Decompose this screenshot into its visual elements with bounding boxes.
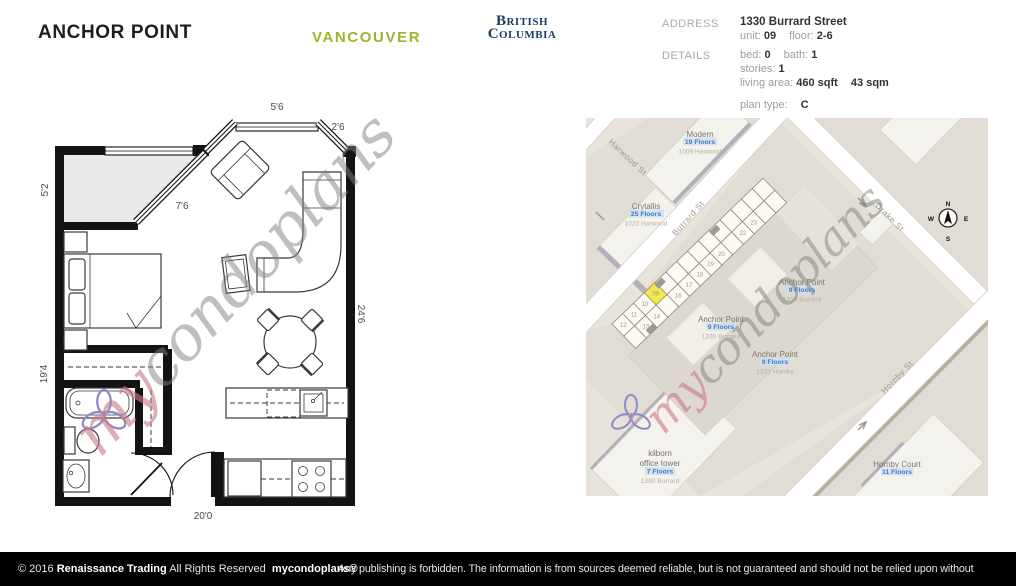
- rights-text: All Rights Reserved: [169, 563, 266, 575]
- svg-text:1333 Hornby: 1333 Hornby: [756, 369, 794, 376]
- dining-table: [257, 309, 324, 376]
- svg-text:1020 Harwood: 1020 Harwood: [625, 221, 668, 228]
- map-unit-number: 16: [675, 293, 682, 299]
- map-unit-number: 22: [740, 231, 747, 237]
- map-unit-number: 18: [697, 273, 704, 279]
- plan-type-value: C: [801, 99, 809, 111]
- floor-plan: 5'6 2'6 7'6 5'2 19'4 24'6 20'0: [40, 95, 370, 527]
- map-unit-number: 14: [653, 314, 660, 320]
- kitchen-counter: [224, 459, 346, 497]
- footer-bar: © 2016 Renaissance Trading All Rights Re…: [0, 552, 1016, 586]
- svg-text:7 Floors: 7 Floors: [647, 469, 674, 476]
- map-unit-number: 09: [652, 292, 659, 298]
- map-unit-number: 23: [750, 221, 757, 227]
- floor-value: 2-6: [817, 30, 833, 42]
- province-line2: Columbia: [462, 28, 582, 41]
- living-area-sqft: 460 sqft: [796, 77, 838, 89]
- plan-type-row: plan type: C: [740, 99, 809, 111]
- stories-row: stories: 1: [740, 63, 785, 75]
- condo-plan-sheet: ANCHOR POINT VANCOUVER British Columbia …: [0, 0, 1016, 586]
- bath-label: bath:: [784, 49, 808, 61]
- bed: [64, 232, 161, 350]
- floor-label: floor:: [789, 30, 813, 42]
- svg-text:N: N: [946, 201, 951, 208]
- svg-text:E: E: [964, 216, 969, 223]
- living-area-label: living area:: [740, 77, 793, 89]
- svg-text:office tower: office tower: [640, 459, 681, 468]
- svg-text:9 Floors: 9 Floors: [789, 287, 816, 294]
- bathroom-sink: [63, 460, 89, 492]
- kitchen-sink: [300, 390, 327, 416]
- svg-text:1330 Burrard: 1330 Burrard: [702, 334, 741, 341]
- svg-text:1330 Burrard: 1330 Burrard: [783, 297, 822, 304]
- svg-text:19 Floors: 19 Floors: [685, 139, 715, 146]
- bath-value: 1: [811, 49, 817, 61]
- unit-value: 09: [764, 30, 776, 42]
- copyright-year: © 2016: [18, 563, 54, 575]
- page-title: ANCHOR POINT: [38, 22, 192, 44]
- unit-floor-row: unit: 09 floor: 2-6: [740, 30, 833, 42]
- svg-text:kilborn: kilborn: [648, 449, 672, 458]
- bed-value: 0: [764, 49, 770, 61]
- dim-right: 24'6: [355, 305, 366, 324]
- toilet: [64, 427, 99, 454]
- entry-door: [170, 452, 216, 497]
- company-name: Renaissance Trading: [57, 563, 167, 575]
- dim-left-lower: 19'4: [40, 364, 50, 383]
- living-area-row: living area: 460 sqft 43 sqm: [740, 77, 889, 89]
- kitchen-island: [226, 388, 348, 418]
- city-label: VANCOUVER: [312, 29, 421, 46]
- svg-text:25 Floors: 25 Floors: [631, 211, 661, 218]
- dim-top: 5'6: [270, 102, 283, 113]
- stove: [292, 461, 331, 497]
- svg-text:9 Floors: 9 Floors: [708, 324, 735, 331]
- svg-text:W: W: [928, 216, 935, 223]
- location-map: 12111009131416171819202223 Harwood St Bu…: [586, 118, 988, 496]
- unit-label: unit:: [740, 30, 761, 42]
- nightstand: [64, 330, 87, 350]
- province-logo: British Columbia: [462, 15, 582, 41]
- svg-text:9 Floors: 9 Floors: [762, 359, 789, 366]
- map-unit-number: 20: [718, 252, 725, 258]
- dim-bottom: 20'0: [194, 511, 213, 522]
- footer-disclaimer: Any publishing is forbidden. The informa…: [338, 552, 1016, 586]
- plan-type-label: plan type:: [740, 99, 788, 111]
- bathtub: [66, 388, 133, 418]
- bay-window-diagonal-left: [206, 122, 235, 151]
- map-unit-number: 11: [631, 312, 638, 318]
- svg-text:1380 Burrard: 1380 Burrard: [641, 478, 680, 485]
- svg-text:1009 Harwood: 1009 Harwood: [679, 149, 722, 156]
- stories-label: stories:: [740, 63, 775, 75]
- details-label: DETAILS: [662, 50, 711, 62]
- ottoman: [222, 255, 250, 294]
- dim-diagonal: 7'6: [175, 201, 188, 212]
- map-unit-number: 10: [642, 302, 649, 308]
- map-unit-number: 17: [686, 283, 693, 289]
- address-value: 1330 Burrard Street: [740, 16, 847, 28]
- stories-value: 1: [779, 63, 785, 75]
- footer-copyright: © 2016 Renaissance Trading All Rights Re…: [18, 552, 358, 586]
- svg-text:S: S: [946, 236, 951, 243]
- sectional-sofa: [257, 172, 341, 292]
- fridge: [228, 461, 261, 496]
- svg-text:11 Floors: 11 Floors: [882, 469, 912, 476]
- dim-top-right: 2'6: [331, 122, 344, 133]
- dim-left-upper: 5'2: [40, 183, 51, 196]
- bathroom-door: [131, 453, 173, 495]
- nightstand: [64, 232, 87, 252]
- bed-bath-row: bed: 0 bath: 1: [740, 49, 817, 61]
- map-unit-number: 12: [620, 323, 627, 329]
- living-area-sqm: 43 sqm: [851, 77, 889, 89]
- map-unit-number: 19: [707, 262, 714, 268]
- bed-label: bed:: [740, 49, 761, 61]
- address-label: ADDRESS: [662, 18, 719, 30]
- armchair: [210, 140, 271, 201]
